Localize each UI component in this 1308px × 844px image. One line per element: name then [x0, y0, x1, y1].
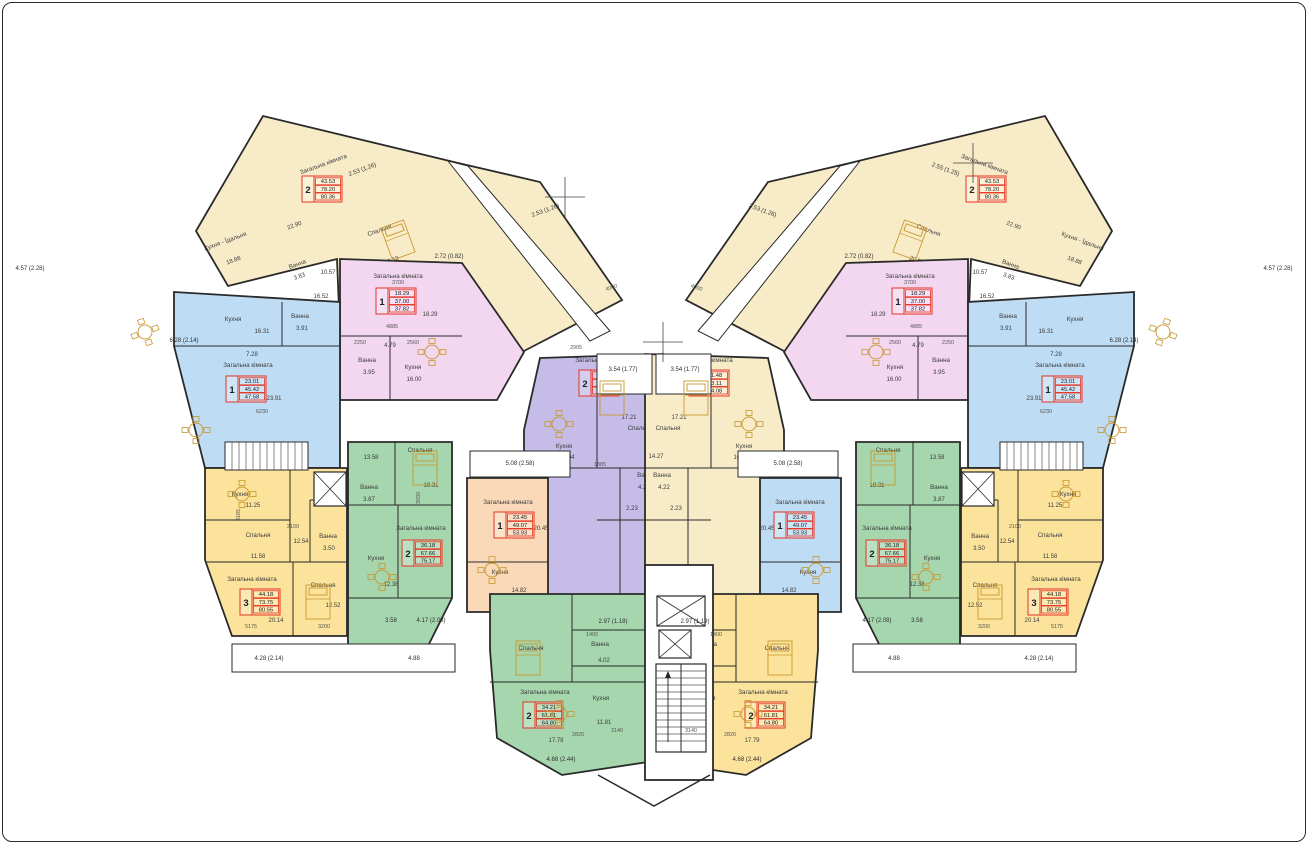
room-label: 3.95 — [363, 370, 375, 376]
dimension-label: 2820 — [724, 732, 736, 738]
area-value: 37.82 — [911, 306, 926, 312]
apartment-flat-1room-blue-center: Загальна кімната20.45Кухня14.82123.4549.… — [759, 478, 841, 612]
dimension-label: 1400 — [586, 632, 598, 638]
room-label: 16.52 — [313, 294, 329, 300]
room-count: 2 — [526, 711, 531, 722]
room-label: Кухня — [593, 695, 610, 702]
room-label: Загальна кімната — [520, 689, 570, 696]
balcony-area-label: 3.58 — [385, 618, 397, 624]
area-value: 80.36 — [321, 194, 336, 200]
room-label: 16.00 — [406, 377, 422, 383]
room-label: 3.91 — [1000, 326, 1012, 332]
area-value: 49.07 — [793, 523, 808, 529]
apartment-area-label: 123.0145.4247.58 — [1042, 376, 1082, 402]
room-label: 23.91 — [266, 396, 282, 402]
dimension-label: 3030 — [416, 492, 422, 504]
area-value: 49.07 — [513, 523, 528, 529]
dimension-label: 2100 — [287, 524, 299, 530]
area-value: 44.18 — [259, 592, 274, 598]
room-label: 3.95 — [933, 370, 945, 376]
area-value: 23.01 — [1061, 379, 1076, 385]
balcony-area-label: 4.68 (2.44) — [546, 757, 575, 763]
area-value: 47.58 — [1061, 394, 1076, 400]
area-value: 23.45 — [513, 515, 528, 521]
room-label: Загальна кімната — [396, 525, 446, 532]
balcony-area-label: 4.17 (2.08) — [862, 618, 891, 624]
room-label: Загальна кімната — [738, 689, 788, 696]
dimension-label: 1885 — [594, 462, 606, 468]
room-label: 18.29 — [870, 312, 886, 318]
elevator-shaft — [314, 472, 346, 506]
area-value: 37.00 — [911, 299, 926, 305]
area-value: 78.20 — [321, 187, 336, 193]
room-label: Загальна кімната — [483, 499, 533, 506]
room-label: 17.21 — [621, 415, 637, 421]
elevator-shaft — [962, 472, 994, 506]
room-label: Ванна — [358, 357, 376, 364]
area-value: 36.18 — [885, 543, 900, 549]
room-label: Кухня — [405, 364, 422, 371]
room-count: 1 — [1045, 385, 1051, 396]
apartment-area-label: 236.1867.6675.17 — [866, 540, 906, 566]
room-label: 3.91 — [296, 326, 308, 332]
room-label: 20.14 — [1024, 618, 1040, 624]
room-label: 20.45 — [759, 526, 775, 532]
area-value: 53.93 — [793, 530, 808, 536]
chair — [138, 318, 145, 325]
room-label: 4.02 — [598, 658, 610, 664]
room-label: 17.21 — [671, 415, 687, 421]
dining-table-icon — [1145, 315, 1181, 350]
room-label: 16.52 — [979, 294, 995, 300]
dimension-label: 2560 — [889, 340, 901, 346]
balcony-area-label: 6.28 (2.14) — [169, 338, 198, 344]
room-label: 11.58 — [1043, 554, 1058, 560]
room-label: Ванна — [653, 472, 671, 479]
staircase-side — [225, 442, 308, 470]
balcony-area-label: 4.88 — [888, 656, 900, 662]
apartment-flat-2room-green-right: Спальня18.31Ванна3.87Кухня12.38Загальна … — [856, 442, 960, 646]
balcony-area-label: 4.57 (2.28) — [1263, 266, 1292, 272]
dimension-label: 5175 — [245, 624, 257, 630]
room-label: Кухня — [368, 555, 385, 562]
room-label: 11.81 — [597, 720, 612, 726]
balcony-area-label: 2.72 (0.82) — [844, 254, 873, 260]
dimension-label: 4885 — [910, 324, 922, 330]
room-label: 17.79 — [548, 738, 564, 744]
room-label: Загальна кімната — [1035, 362, 1085, 369]
area-value: 67.66 — [421, 551, 436, 557]
room-count: 1 — [497, 521, 503, 532]
chair — [1163, 318, 1170, 325]
area-value: 80.36 — [985, 194, 1000, 200]
room-label: 4.79 — [384, 343, 396, 349]
staircase-side — [1000, 442, 1083, 470]
dimension-label: 2560 — [407, 340, 419, 346]
area-value: 43.53 — [985, 179, 1000, 185]
table-top — [1154, 323, 1172, 341]
room-label: 17.79 — [744, 738, 760, 744]
room-count: 3 — [243, 598, 248, 609]
balcony-area-label: 4.28 (2.14) — [1024, 656, 1053, 662]
room-label: 11.25 — [1048, 503, 1063, 509]
balcony-area-label: 4.88 — [408, 656, 420, 662]
room-label: 2.23 — [670, 506, 682, 512]
room-label: 12.54 — [293, 539, 309, 545]
room-label: 4.79 — [912, 343, 924, 349]
room-label: Спальня — [876, 447, 901, 454]
elevator-shaft — [659, 630, 691, 658]
room-label: Загальна кімната — [227, 576, 277, 583]
area-value: 80.55 — [1047, 607, 1062, 613]
room-count: 2 — [869, 549, 874, 560]
room-count: 1 — [379, 297, 385, 308]
chair — [131, 332, 138, 339]
dimension-label: 3700 — [392, 280, 404, 286]
room-count: 2 — [405, 549, 410, 560]
room-label: Ванна — [999, 313, 1017, 320]
apartment-area-label: 236.1867.6675.17 — [402, 540, 442, 566]
room-label: 3.50 — [973, 546, 985, 552]
dimension-label: 1400 — [710, 632, 722, 638]
staircase-main — [656, 664, 706, 752]
room-label: 3.50 — [323, 546, 335, 552]
apartment-flat-1room-orange-center: Загальна кімната20.45Кухня14.82123.4549.… — [467, 478, 549, 612]
balcony-outline — [597, 354, 652, 394]
apartment-area-label: 344.1873.7580.55 — [240, 589, 280, 615]
balcony-area-label: 3.58 — [911, 618, 923, 624]
dimension-label: 5175 — [1051, 624, 1063, 630]
room-label: 2.23 — [626, 506, 638, 512]
balcony-area-label: 4.28 (2.14) — [254, 656, 283, 662]
room-label: Ванна — [930, 484, 948, 491]
area-value: 75.17 — [885, 558, 900, 564]
area-value: 73.75 — [1047, 600, 1062, 606]
room-label: Ванна — [971, 533, 989, 540]
dimension-label: 3140 — [685, 728, 697, 734]
apartment-area-label: 118.2937.0037.82 — [376, 288, 416, 314]
dimension-label: 2100 — [1009, 524, 1021, 530]
chair — [1120, 428, 1126, 433]
balcony-area-label: 5.08 (2.58) — [773, 461, 802, 467]
balcony-area-label: 6.28 (2.14) — [1109, 338, 1138, 344]
dimension-label: 6230 — [1040, 409, 1052, 415]
room-count: 1 — [229, 385, 235, 396]
area-value: 37.00 — [395, 299, 410, 305]
stairs-box — [1000, 442, 1083, 470]
room-label: 20.14 — [268, 618, 284, 624]
area-value: 80.55 — [259, 607, 274, 613]
chair — [182, 428, 188, 433]
area-value: 78.20 — [985, 187, 1000, 193]
area-value: 64.80 — [542, 720, 557, 726]
apartment-flat-2room-green-left: Спальня18.31Ванна3.87Кухня12.38Загальна … — [348, 442, 452, 646]
room-label: 4.22 — [658, 485, 670, 491]
room-label: 11.58 — [251, 554, 266, 560]
room-label: Загальна кімната — [885, 273, 935, 280]
floor-plan-drawing: Загальна кімнатаКухня - Їдальня18.88Спал… — [0, 0, 1308, 844]
area-value: 73.75 — [259, 600, 274, 606]
room-label: Спальня — [246, 532, 271, 539]
room-count: 2 — [969, 185, 974, 196]
room-label: Загальна кімната — [775, 499, 825, 506]
area-value: 36.18 — [421, 543, 436, 549]
dining-table-icon — [127, 315, 163, 350]
room-label: Кухня — [887, 364, 904, 371]
room-label: 18.29 — [422, 312, 438, 318]
area-value: 47.58 — [245, 394, 260, 400]
area-value: 18.29 — [395, 291, 410, 297]
room-label: 3.87 — [933, 497, 945, 503]
room-label: Загальна кімната — [373, 273, 423, 280]
room-label: 14.27 — [648, 454, 664, 460]
room-label: Ванна — [319, 533, 337, 540]
area-value: 43.53 — [321, 179, 336, 185]
room-label: Ванна — [291, 313, 309, 320]
room-label: Загальна кімната — [223, 362, 273, 369]
room-label: Загальна кімната — [862, 525, 912, 532]
room-label: Ванна — [360, 484, 378, 491]
chair — [1170, 332, 1177, 339]
room-label: Кухня — [924, 555, 941, 562]
balcony-area-label: 5.08 (2.58) — [505, 461, 534, 467]
room-label: Кухня — [225, 316, 242, 323]
stairs-box — [225, 442, 308, 470]
dimension-label: 2905 — [570, 345, 582, 351]
dimension-label: 4885 — [386, 324, 398, 330]
room-label: Кухня — [1067, 316, 1084, 323]
dimension-label: 3140 — [611, 728, 623, 734]
balcony-area-label: 4.68 (2.44) — [732, 757, 761, 763]
area-value: 45.42 — [245, 387, 260, 393]
apartment-area-label: 118.2937.0037.82 — [892, 288, 932, 314]
balcony-area-label: 4.57 (2.28) — [15, 266, 44, 272]
apartment-area-label: 344.1873.7580.55 — [1028, 589, 1068, 615]
area-value: 61.81 — [764, 713, 779, 719]
chair — [152, 325, 159, 332]
room-label: Ванна — [591, 641, 609, 648]
chair — [1156, 339, 1163, 346]
dimension-label: 3200 — [978, 624, 990, 630]
room-label: 3.83 — [1002, 272, 1016, 282]
apartment-area-label: 243.5378.2080.36 — [302, 176, 342, 202]
room-label: 16.31 — [1038, 329, 1054, 335]
dimension-label: 4185 — [236, 509, 242, 521]
room-label: 7.28 — [1050, 352, 1062, 358]
balcony-outline — [656, 354, 711, 394]
apartment-area-label: 123.0145.4247.58 — [226, 376, 266, 402]
room-label: Кухня — [736, 443, 753, 450]
room-label: 12.52 — [967, 603, 983, 609]
balcony-area-label: 2.72 (0.82) — [434, 254, 463, 260]
room-label: Спальня — [656, 425, 681, 432]
area-value: 75.17 — [421, 558, 436, 564]
room-label: Спальня — [408, 447, 433, 454]
room-label: 16.31 — [254, 329, 270, 335]
dimension-label: 2250 — [354, 340, 366, 346]
room-label: 7.28 — [246, 352, 258, 358]
dimension-label: 6230 — [256, 409, 268, 415]
table-top — [136, 323, 154, 341]
apartment-area-label: 123.4549.0753.93 — [494, 512, 534, 538]
area-value: 44.18 — [1047, 592, 1062, 598]
room-label: Загальна кімната — [1031, 576, 1081, 583]
room-label: 10.57 — [972, 270, 988, 276]
balcony-area-label: 3.54 (1.77) — [608, 367, 637, 373]
room-count: 1 — [895, 297, 901, 308]
balcony-area-label: 2.97 (1.19) — [680, 619, 709, 625]
room-label: 13.58 — [363, 455, 379, 461]
floor-plan-canvas: Загальна кімнатаКухня - Їдальня18.88Спал… — [0, 0, 1308, 844]
balcony-area-label: 2.97 (1.18) — [598, 619, 627, 625]
area-value: 64.80 — [764, 720, 779, 726]
room-label: 3.83 — [293, 272, 307, 282]
area-value: 18.29 — [911, 291, 926, 297]
dimension-label: 2250 — [942, 340, 954, 346]
area-value: 23.01 — [245, 379, 260, 385]
chair — [1149, 325, 1156, 332]
balcony-area-label: 3.54 (1.77) — [670, 367, 699, 373]
area-value: 45.42 — [1061, 387, 1076, 393]
room-label: 12.52 — [325, 603, 341, 609]
room-count: 2 — [582, 379, 587, 390]
room-label: Кухня — [556, 443, 573, 450]
area-value: 37.82 — [395, 306, 410, 312]
room-label: 13.58 — [929, 455, 945, 461]
dimension-label: 2820 — [572, 732, 584, 738]
room-label: 10.57 — [320, 270, 336, 276]
apartment-area-label: 123.4549.0753.93 — [774, 512, 814, 538]
dimension-label: 3700 — [904, 280, 916, 286]
room-label: Спальня — [1038, 532, 1063, 539]
balcony-area-label: 4.17 (2.08) — [416, 618, 445, 624]
room-count: 2 — [305, 185, 310, 196]
room-label: 16.00 — [886, 377, 902, 383]
apartment-area-label: 243.5378.2080.36 — [966, 176, 1006, 202]
area-value: 34.21 — [764, 705, 779, 711]
area-value: 53.93 — [513, 530, 528, 536]
room-count: 3 — [1031, 598, 1036, 609]
room-label: 23.91 — [1026, 396, 1042, 402]
room-label: 3.87 — [363, 497, 375, 503]
chair — [145, 339, 152, 346]
room-label: 20.45 — [533, 526, 549, 532]
room-label: 12.54 — [999, 539, 1015, 545]
area-value: 23.45 — [793, 515, 808, 521]
area-value: 67.66 — [885, 551, 900, 557]
room-count: 1 — [777, 521, 783, 532]
room-label: Ванна — [932, 357, 950, 364]
room-label: 11.25 — [246, 503, 261, 509]
dimension-label: 3200 — [318, 624, 330, 630]
room-label: 18.31 — [869, 483, 885, 489]
